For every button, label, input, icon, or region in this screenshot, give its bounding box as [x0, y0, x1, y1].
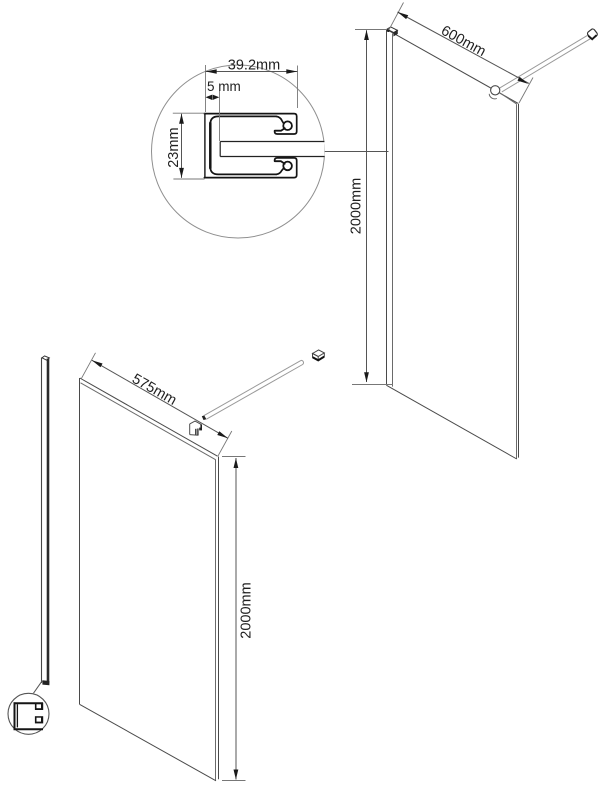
svg-text:39.2mm: 39.2mm: [228, 58, 280, 74]
svg-text:2000mm: 2000mm: [349, 178, 365, 234]
svg-text:5 mm: 5 mm: [207, 79, 241, 94]
svg-text:23mm: 23mm: [166, 127, 182, 167]
svg-text:2000mm: 2000mm: [238, 582, 254, 638]
